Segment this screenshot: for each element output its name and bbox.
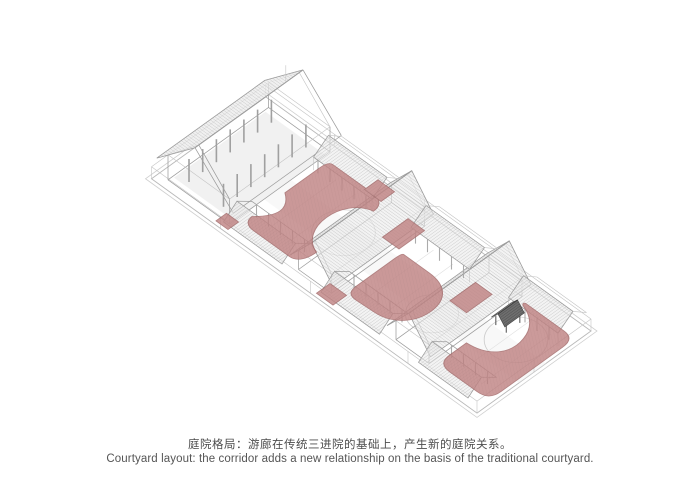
courtyard-axonometric-diagram (0, 0, 700, 430)
caption-chinese: 庭院格局：游廊在传统三进院的基础上，产生新的庭院关系。 (0, 436, 700, 452)
page: { "figure": { "kind": "axonometric-court… (0, 0, 700, 494)
caption-english: Courtyard layout: the corridor adds a ne… (0, 453, 700, 465)
